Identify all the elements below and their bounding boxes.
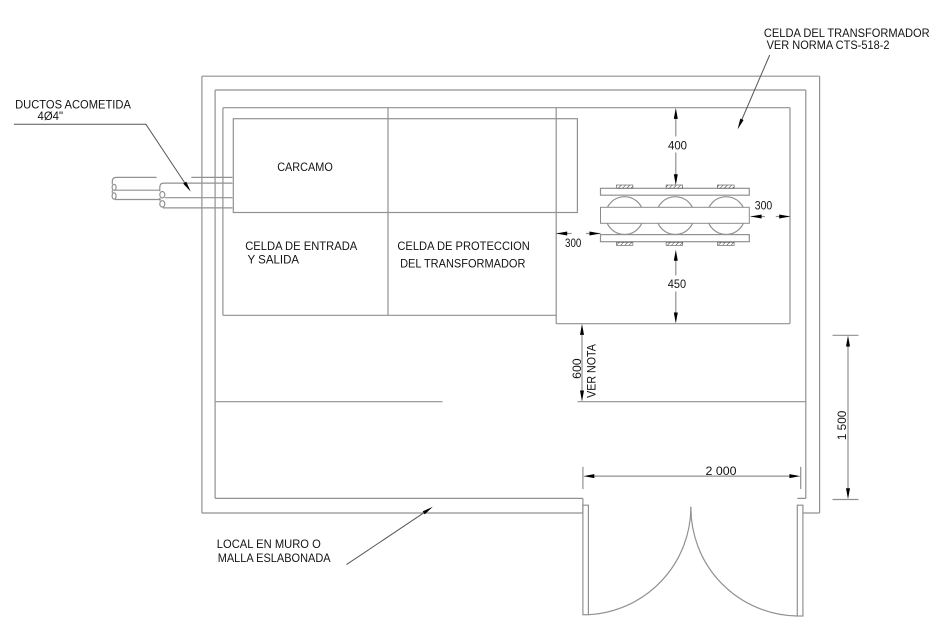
svg-text:DUCTOS ACOMETIDA: DUCTOS ACOMETIDA	[15, 98, 131, 112]
svg-text:Y SALIDA: Y SALIDA	[248, 252, 300, 266]
svg-text:MALLA ESLABONADA: MALLA ESLABONADA	[218, 551, 331, 565]
svg-text:DEL TRANSFORMADOR: DEL TRANSFORMADOR	[400, 256, 525, 270]
svg-text:4Ø4": 4Ø4"	[38, 109, 64, 123]
svg-text:VER NOTA: VER NOTA	[584, 344, 598, 398]
svg-text:300: 300	[755, 198, 773, 212]
svg-text:400: 400	[668, 139, 687, 153]
svg-text:300: 300	[565, 236, 582, 250]
svg-text:CARCAMO: CARCAMO	[277, 160, 333, 174]
svg-text:600: 600	[570, 358, 584, 379]
svg-text:1 500: 1 500	[835, 410, 849, 440]
svg-text:LOCAL EN MURO O: LOCAL EN MURO O	[217, 537, 321, 551]
svg-text:450: 450	[668, 277, 687, 291]
svg-text:2 000: 2 000	[706, 464, 737, 478]
svg-text:VER NORMA CTS-518-2: VER NORMA CTS-518-2	[767, 38, 890, 52]
svg-text:CELDA DE ENTRADA: CELDA DE ENTRADA	[245, 239, 357, 253]
svg-text:CELDA DE PROTECCION: CELDA DE PROTECCION	[397, 239, 529, 253]
